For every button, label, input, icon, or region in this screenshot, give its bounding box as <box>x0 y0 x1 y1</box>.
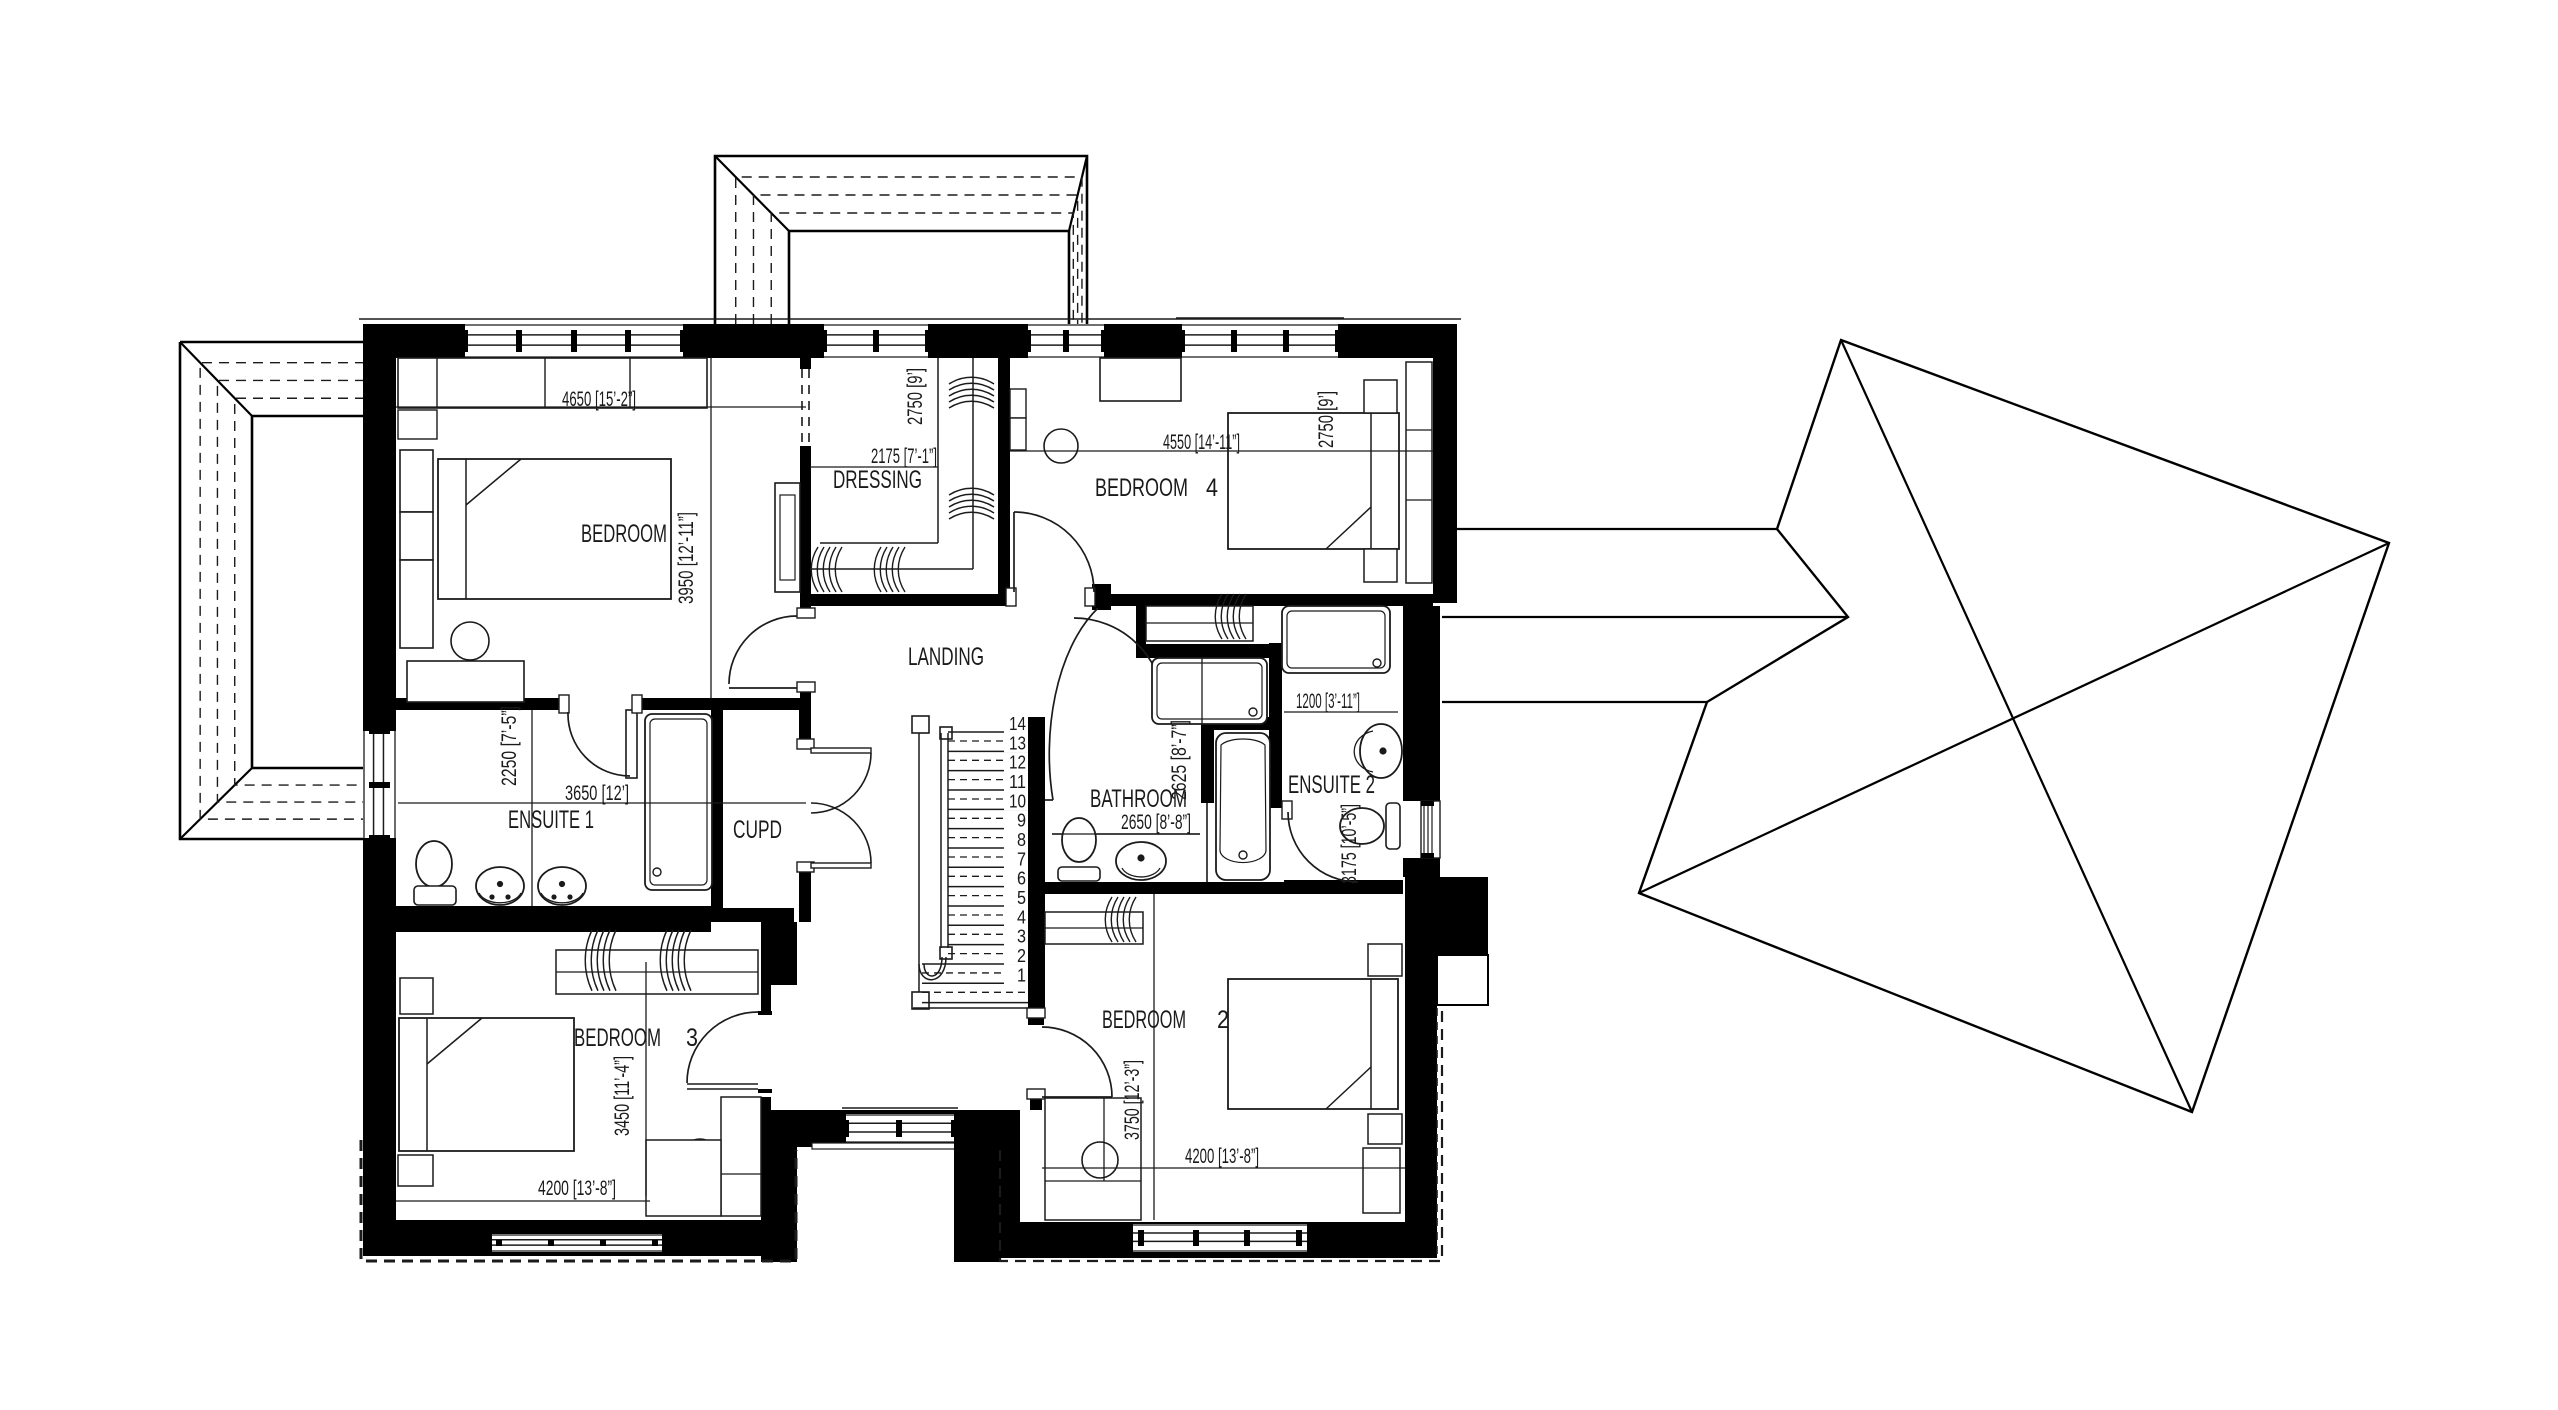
svg-text:BEDROOM: BEDROOM <box>1102 1006 1186 1034</box>
svg-text:10: 10 <box>1009 791 1026 811</box>
svg-text:2: 2 <box>1217 1006 1229 1034</box>
svg-text:2750 [9’]: 2750 [9’] <box>904 368 927 425</box>
svg-text:CUPD: CUPD <box>733 816 782 844</box>
svg-text:BEDROOM: BEDROOM <box>574 1024 661 1052</box>
svg-text:6: 6 <box>1017 869 1026 889</box>
svg-text:8: 8 <box>1017 830 1026 850</box>
svg-text:3175 [10’-5”]: 3175 [10’-5”] <box>1338 804 1361 884</box>
svg-text:DRESSING: DRESSING <box>833 466 922 494</box>
svg-text:9: 9 <box>1017 811 1026 831</box>
svg-text:2175 [7’-1”]: 2175 [7’-1”] <box>871 445 937 468</box>
svg-text:2750 [9’]: 2750 [9’] <box>1315 391 1338 448</box>
svg-text:LANDING: LANDING <box>908 643 984 671</box>
svg-text:BEDROOM: BEDROOM <box>581 520 667 548</box>
svg-text:4: 4 <box>1017 907 1026 927</box>
svg-text:3450 [11’-4”]: 3450 [11’-4”] <box>611 1056 634 1136</box>
svg-text:14: 14 <box>1009 714 1026 734</box>
svg-text:3650 [12’]: 3650 [12’] <box>565 782 629 805</box>
svg-text:2250 [7’-5”]: 2250 [7’-5”] <box>498 706 521 786</box>
svg-text:1200 [3’-11”]: 1200 [3’-11”] <box>1296 690 1360 713</box>
svg-text:3: 3 <box>686 1024 698 1052</box>
svg-text:BEDROOM: BEDROOM <box>1095 474 1188 502</box>
svg-text:4: 4 <box>1206 474 1218 502</box>
svg-text:2: 2 <box>1017 946 1026 966</box>
svg-text:BATHROOM: BATHROOM <box>1090 785 1187 813</box>
svg-text:3: 3 <box>1017 927 1026 947</box>
svg-text:7: 7 <box>1017 849 1026 869</box>
svg-text:12: 12 <box>1009 753 1026 773</box>
svg-text:11: 11 <box>1009 772 1026 792</box>
svg-text:5: 5 <box>1017 888 1026 908</box>
svg-text:1: 1 <box>1017 965 1026 985</box>
svg-text:13: 13 <box>1009 733 1026 753</box>
svg-text:ENSUITE 2: ENSUITE 2 <box>1288 771 1375 799</box>
svg-text:ENSUITE 1: ENSUITE 1 <box>508 806 594 834</box>
svg-text:3750 [12’-3”]: 3750 [12’-3”] <box>1121 1060 1144 1140</box>
svg-text:4200 [13’-8”]: 4200 [13’-8”] <box>1185 1145 1259 1168</box>
svg-text:3950 [12’-11”]: 3950 [12’-11”] <box>675 512 698 604</box>
svg-text:4200 [13’-8”]: 4200 [13’-8”] <box>538 1177 616 1200</box>
svg-text:2650 [8’-8”]: 2650 [8’-8”] <box>1121 811 1191 834</box>
